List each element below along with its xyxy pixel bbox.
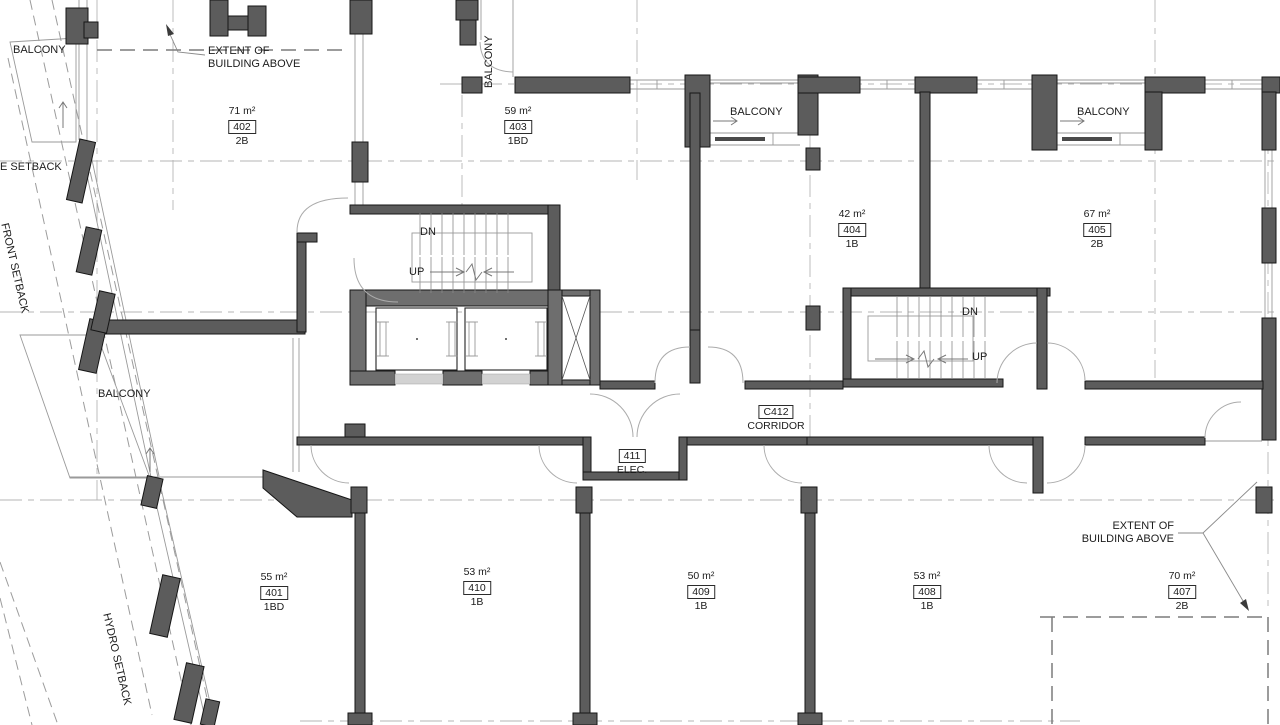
elevator-car-1 — [376, 308, 458, 370]
unit-410-type: 1B — [463, 596, 491, 608]
extent-above-note-top: EXTENT OF BUILDING ABOVE — [208, 45, 300, 71]
floor-plan: BALCONY BALCONY BALCONY BALCONY BALCONY … — [0, 0, 1280, 725]
unit-label-410: 53 m² 410 1B — [463, 566, 491, 608]
unit-409-type: 1B — [687, 600, 715, 612]
unit-403-type: 1BD — [504, 135, 532, 147]
unit-403-number: 403 — [504, 120, 532, 134]
unit-410-area: 53 m² — [463, 566, 491, 578]
unit-409-area: 50 m² — [687, 570, 715, 582]
unit-402-number: 402 — [228, 120, 256, 134]
unit-label-409: 50 m² 409 1B — [687, 570, 715, 612]
unit-403-area: 59 m² — [504, 105, 532, 117]
unit-label-402: 71 m² 402 2B — [228, 105, 256, 147]
extent-top-line1: EXTENT OF — [208, 45, 300, 58]
unit-label-403: 59 m² 403 1BD — [504, 105, 532, 147]
stair-right-up-label: UP — [972, 351, 987, 364]
unit-label-405: 67 m² 405 2B — [1083, 208, 1111, 250]
unit-404-area: 42 m² — [838, 208, 866, 220]
balcony-label-top-2: BALCONY — [1077, 106, 1130, 119]
corridor-number: C412 — [758, 405, 793, 419]
side-setback-label: E SETBACK — [0, 161, 62, 174]
unit-405-number: 405 — [1083, 223, 1111, 237]
unit-408-number: 408 — [913, 585, 941, 599]
unit-401-area: 55 m² — [260, 571, 288, 583]
unit-label-407: 70 m² 407 2B — [1168, 570, 1196, 612]
stair-left-dn-label: DN — [420, 226, 436, 239]
unit-405-type: 2B — [1083, 238, 1111, 250]
unit-401-number: 401 — [260, 586, 288, 600]
corridor-name: CORRIDOR — [747, 420, 804, 432]
unit-409-number: 409 — [687, 585, 715, 599]
unit-410-number: 410 — [463, 581, 491, 595]
unit-407-type: 2B — [1168, 600, 1196, 612]
unit-401-type: 1BD — [260, 601, 288, 613]
elevator-core — [350, 290, 600, 385]
unit-408-area: 53 m² — [913, 570, 941, 582]
extent-above-note-bottom: EXTENT OF BUILDING ABOVE — [1004, 520, 1174, 546]
balcony-label-top-left: BALCONY — [13, 44, 66, 57]
unit-405-area: 67 m² — [1083, 208, 1111, 220]
balcony-label-top-1: BALCONY — [730, 106, 783, 119]
corridor-label: C412 CORRIDOR — [747, 402, 804, 432]
unit-label-408: 53 m² 408 1B — [913, 570, 941, 612]
unit-407-area: 70 m² — [1168, 570, 1196, 582]
unit-407-number: 407 — [1168, 585, 1196, 599]
stair-right-dn-label: DN — [962, 306, 978, 319]
elec-number: 411 — [619, 449, 646, 463]
stair-left — [412, 213, 532, 293]
elec-name: ELEC. — [617, 464, 647, 476]
unit-402-area: 71 m² — [228, 105, 256, 117]
unit-404-number: 404 — [838, 223, 866, 237]
extent-bottom-line1: EXTENT OF — [1004, 520, 1174, 533]
balcony-label-vertical: BALCONY — [483, 35, 496, 88]
extent-top-line2: BUILDING ABOVE — [208, 58, 300, 71]
stair-left-up-label: UP — [409, 266, 424, 279]
unit-402-type: 2B — [228, 135, 256, 147]
balcony-label-mid-left: BALCONY — [98, 388, 151, 401]
elec-room-label: 411 ELEC. — [617, 446, 647, 476]
extent-bottom-line2: BUILDING ABOVE — [1004, 533, 1174, 546]
unit-label-401: 55 m² 401 1BD — [260, 571, 288, 613]
unit-408-type: 1B — [913, 600, 941, 612]
elevator-car-2 — [465, 308, 547, 370]
unit-404-type: 1B — [838, 238, 866, 250]
unit-label-404: 42 m² 404 1B — [838, 208, 866, 250]
